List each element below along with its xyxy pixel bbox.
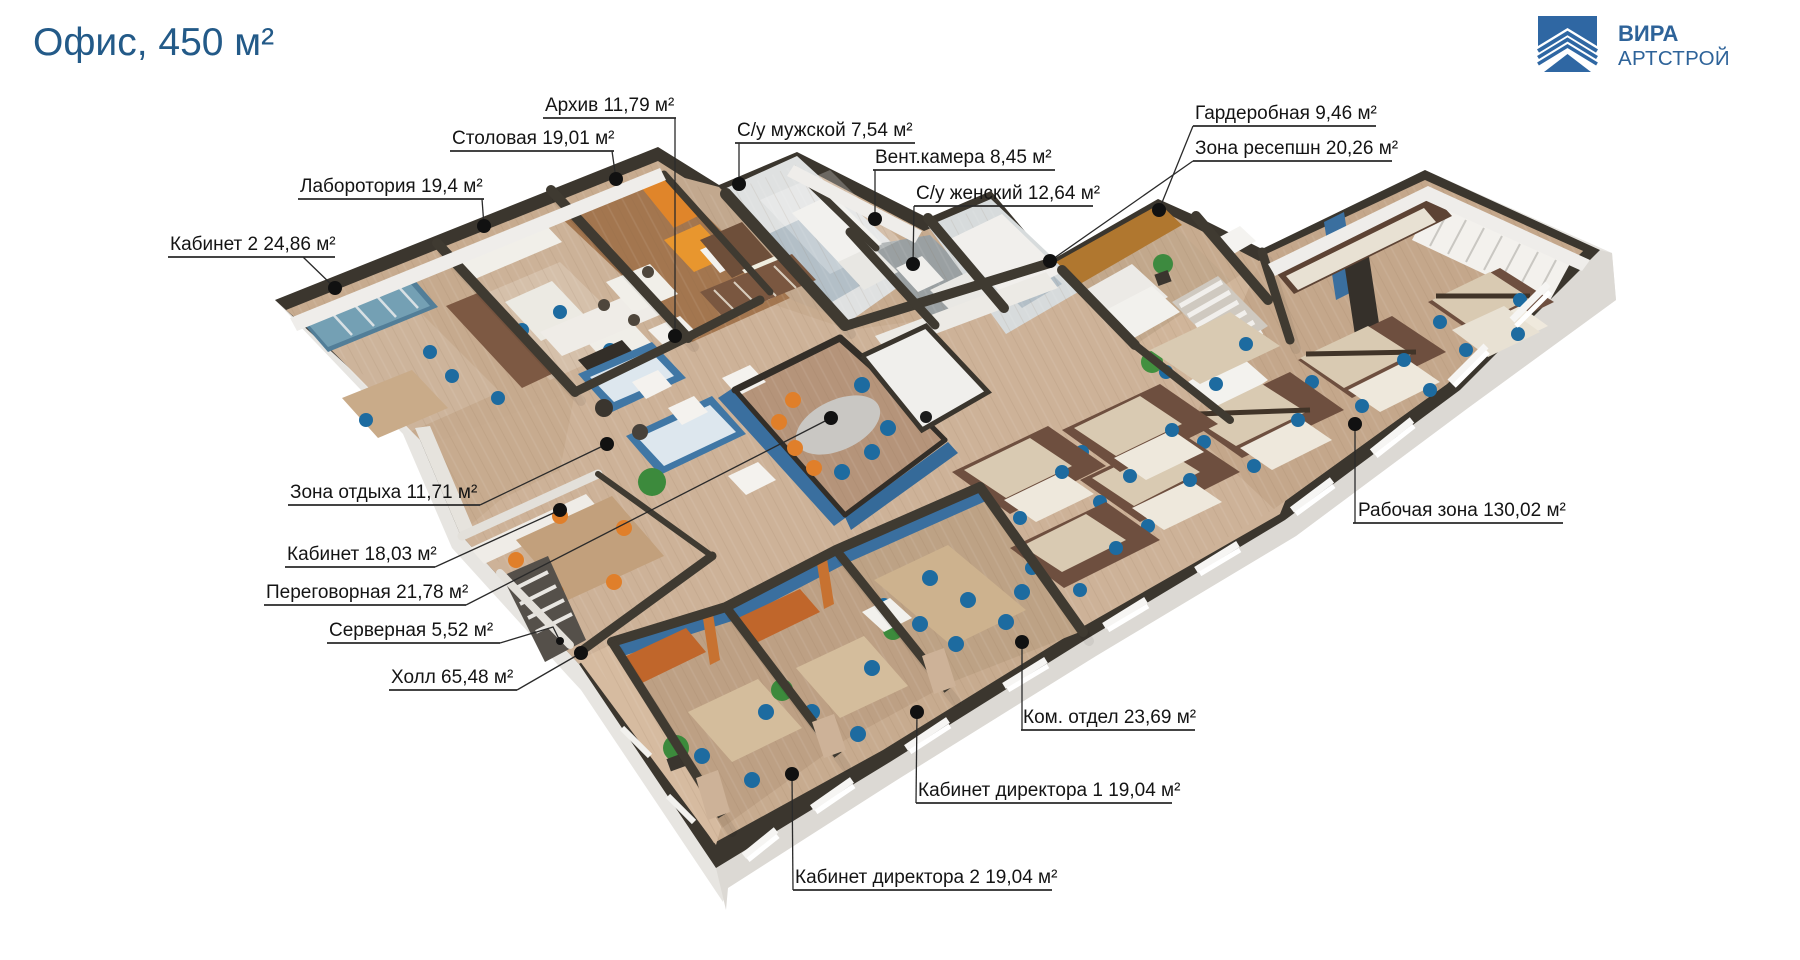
svg-text:Кабинет директора 1 19,04 м²: Кабинет директора 1 19,04 м² (918, 780, 1180, 801)
svg-text:Кабинет 18,03 м²: Кабинет 18,03 м² (287, 544, 437, 565)
svg-text:Архив 11,79 м²: Архив 11,79 м² (545, 95, 674, 116)
svg-text:Столовая 19,01 м²: Столовая 19,01 м² (452, 128, 614, 149)
svg-text:Холл 65,48 м²: Холл 65,48 м² (391, 667, 513, 688)
svg-text:ВИРА: ВИРА (1618, 21, 1678, 46)
svg-text:Кабинет 2 24,86 м²: Кабинет 2 24,86 м² (170, 234, 336, 255)
svg-text:Переговорная 21,78 м²: Переговорная 21,78 м² (266, 582, 468, 603)
svg-text:Зона отдыха 11,71 м²: Зона отдыха 11,71 м² (290, 482, 477, 503)
svg-text:С/у женский 12,64 м²: С/у женский 12,64 м² (916, 183, 1100, 204)
svg-text:АРТСТРОЙ: АРТСТРОЙ (1618, 46, 1730, 70)
svg-text:С/у мужской 7,54 м²: С/у мужской 7,54 м² (737, 120, 913, 141)
svg-text:Гардеробная 9,46 м²: Гардеробная 9,46 м² (1195, 103, 1377, 124)
svg-text:Лаборотория 19,4 м²: Лаборотория 19,4 м² (300, 176, 483, 197)
svg-text:Рабочая зона 130,02 м²: Рабочая зона 130,02 м² (1358, 500, 1566, 521)
svg-text:Серверная 5,52 м²: Серверная 5,52 м² (329, 620, 493, 641)
svg-text:Офис, 450 м²: Офис, 450 м² (33, 21, 274, 64)
svg-text:Ком. отдел 23,69 м²: Ком. отдел 23,69 м² (1023, 707, 1196, 728)
svg-text:Кабинет директора 2 19,04 м²: Кабинет директора 2 19,04 м² (795, 867, 1057, 888)
svg-text:Зона ресепшн 20,26 м²: Зона ресепшн 20,26 м² (1195, 138, 1398, 159)
svg-text:Вент.камера 8,45 м²: Вент.камера 8,45 м² (875, 147, 1052, 168)
